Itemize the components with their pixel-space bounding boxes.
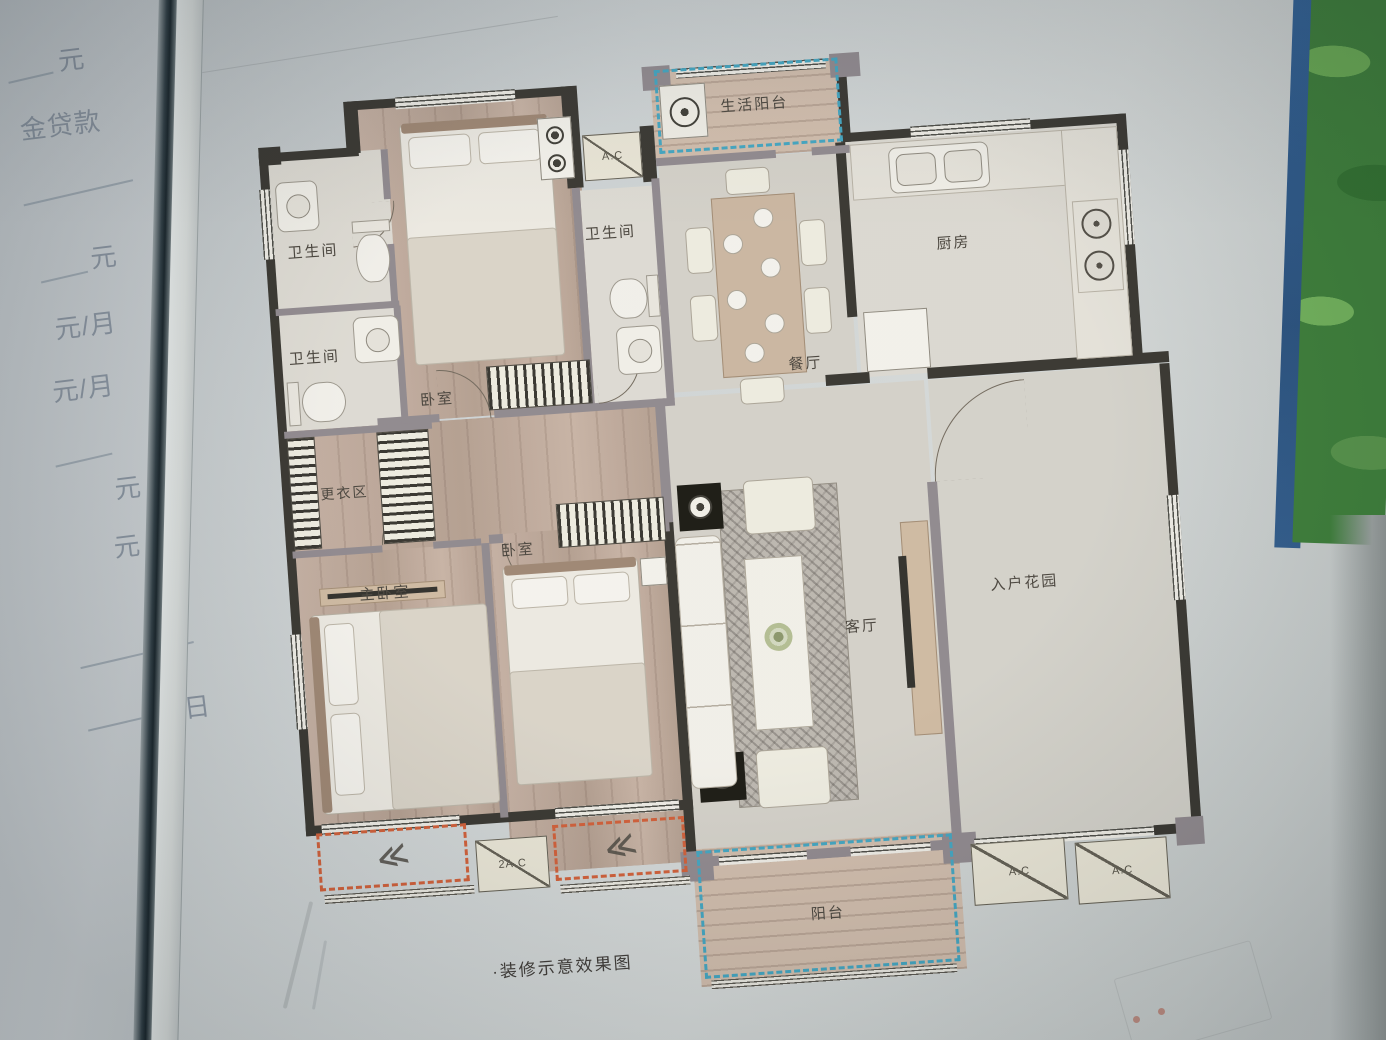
bed-blanket bbox=[407, 227, 566, 365]
bookshelf bbox=[556, 497, 667, 548]
room-label-bathroom-3: 卫生间 bbox=[584, 220, 636, 245]
form-underline bbox=[24, 179, 134, 206]
room-label-balcony: 阳台 bbox=[810, 901, 845, 924]
pillow bbox=[511, 576, 569, 610]
room-label-dining: 餐厅 bbox=[788, 351, 823, 374]
kitchen-sink-icon bbox=[888, 141, 991, 194]
armchair bbox=[743, 476, 817, 535]
form-label-loan: 金贷款 bbox=[18, 101, 103, 148]
louver-icon: ≪ bbox=[600, 825, 641, 868]
form-label-yuan-month-2: 元/月 bbox=[50, 365, 116, 409]
paper-crease bbox=[202, 16, 558, 73]
dresser bbox=[537, 116, 575, 180]
page-curl-shadow bbox=[1330, 515, 1386, 1040]
pillow bbox=[330, 712, 366, 796]
dining-chair bbox=[690, 294, 719, 342]
speaker-icon bbox=[677, 483, 724, 532]
form-label-yuan-1: 元 bbox=[56, 38, 87, 78]
sink-icon bbox=[275, 180, 320, 233]
wardrobe bbox=[376, 429, 436, 544]
ac-box-right-1: A.C bbox=[970, 837, 1068, 905]
sink-icon bbox=[616, 324, 663, 375]
wardrobe bbox=[486, 359, 593, 410]
room-label-dressing: 更衣区 bbox=[320, 481, 369, 504]
sink-icon bbox=[352, 315, 401, 364]
louver-icon: ≪ bbox=[372, 835, 413, 878]
bay-window-dashed-1: ≪ bbox=[316, 823, 470, 891]
pillow bbox=[573, 571, 631, 605]
pillow bbox=[408, 133, 472, 169]
dining-chair bbox=[799, 219, 828, 267]
form-label-yuan-month-1: 元/月 bbox=[52, 302, 118, 346]
bay-window-dashed-2: ≪ bbox=[552, 816, 688, 881]
pillow bbox=[324, 623, 360, 707]
ac-box-top: A.C bbox=[582, 131, 643, 181]
floor-plan: 生活阳台 A.C 卫生间 卫生间 卧室 卫生间 bbox=[247, 36, 1215, 1027]
faint-red-dot bbox=[1133, 1016, 1140, 1023]
form-label-yuan-3: 元 bbox=[112, 466, 143, 506]
ac-box-right-2: A.C bbox=[1075, 836, 1171, 904]
fridge-icon bbox=[863, 308, 931, 372]
room-label-bedroom-top: 卧室 bbox=[419, 387, 454, 410]
form-underline bbox=[41, 271, 88, 284]
dining-table bbox=[711, 193, 807, 378]
room-label-bathroom-1: 卫生间 bbox=[287, 239, 339, 264]
dining-chair bbox=[725, 166, 771, 195]
ac-diagonal bbox=[971, 839, 1067, 905]
wall bbox=[258, 146, 281, 165]
room-label-master: 主卧室 bbox=[359, 580, 411, 605]
pillow bbox=[478, 128, 542, 164]
ac-box-double: 2A.C bbox=[475, 836, 550, 893]
form-underline bbox=[8, 72, 53, 84]
nightstand bbox=[640, 557, 668, 587]
form-label-yuan-2: 元 bbox=[88, 236, 119, 276]
room-label-kitchen: 厨房 bbox=[936, 231, 971, 254]
dining-chair bbox=[739, 376, 785, 405]
plan-caption: ·装修示意效果图 bbox=[491, 948, 633, 983]
form-underline bbox=[56, 453, 113, 468]
ac-diagonal bbox=[1076, 837, 1170, 903]
dining-chair bbox=[803, 287, 832, 335]
washing-machine-icon bbox=[659, 83, 709, 140]
photo-of-floorplan-page: 元 金贷款 元 元/月 元/月 元 元 日 bbox=[0, 0, 1386, 1040]
room-label-bathroom-2: 卫生间 bbox=[288, 345, 340, 370]
pillar bbox=[1175, 816, 1205, 846]
room-label-bedroom-mid: 卧室 bbox=[500, 538, 535, 561]
faint-red-dot bbox=[1158, 1008, 1165, 1015]
ac-diagonal bbox=[476, 837, 549, 892]
form-label-yuan-4: 元 bbox=[112, 525, 143, 565]
room-label-living: 客厅 bbox=[844, 614, 879, 637]
wall bbox=[679, 799, 694, 810]
stove-icon bbox=[1072, 198, 1124, 293]
ac-diagonal bbox=[583, 132, 642, 180]
dining-chair bbox=[685, 227, 714, 275]
armchair bbox=[755, 746, 831, 809]
bed-blanket bbox=[379, 603, 501, 810]
bed-blanket bbox=[509, 662, 653, 785]
